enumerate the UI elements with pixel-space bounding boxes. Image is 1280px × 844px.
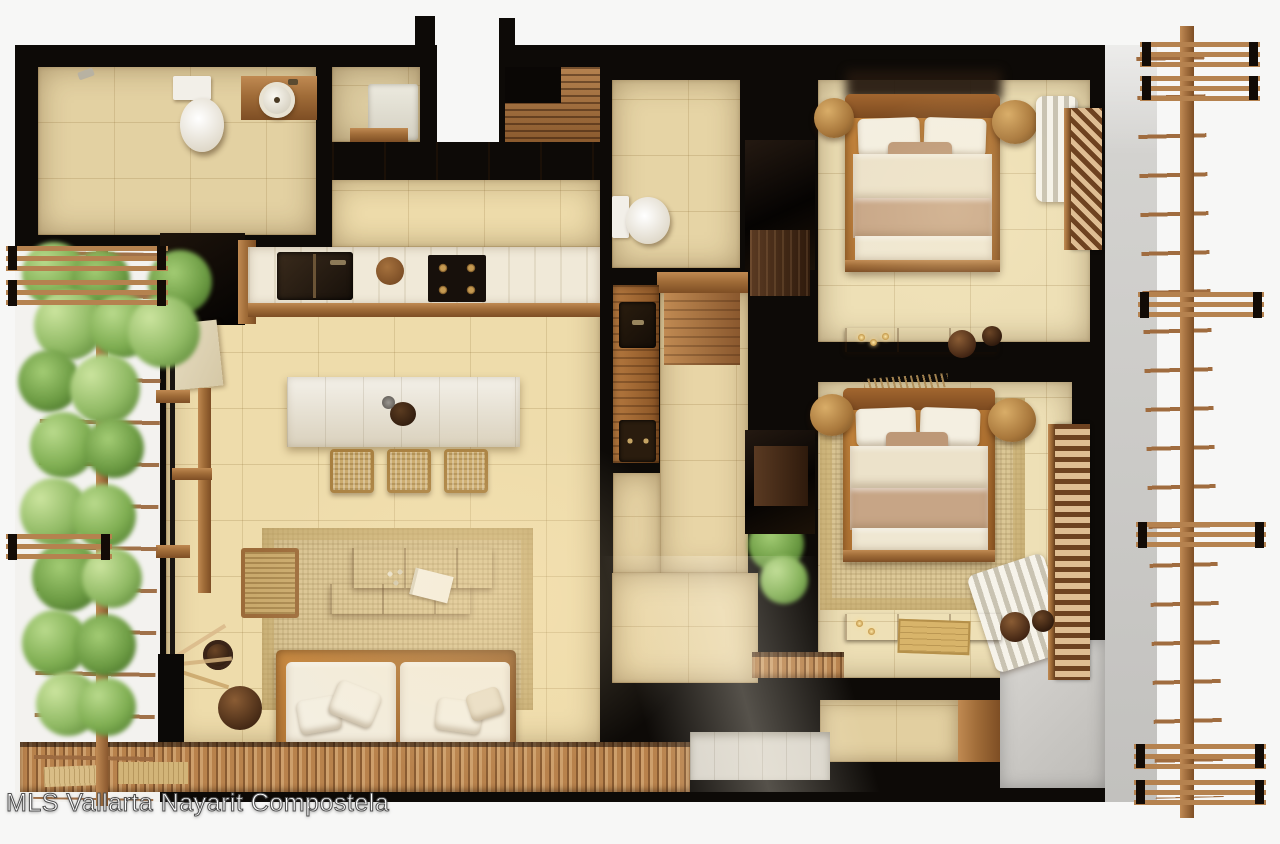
bed1-sheet-top xyxy=(853,154,992,200)
bedroom1-window-frame xyxy=(1064,108,1071,250)
right-beams-5 xyxy=(1134,744,1266,770)
right-beams-1 xyxy=(1140,42,1260,68)
bed1-pouf-right xyxy=(992,100,1038,144)
bedroom2-door-deck xyxy=(752,652,844,678)
pergola-beams-top-1 xyxy=(6,246,168,272)
garden-leaf xyxy=(74,614,136,676)
kitchen-back-floor xyxy=(332,180,600,247)
marble-walkway xyxy=(690,732,830,780)
bed2-blanket xyxy=(850,488,988,530)
sink-faucet xyxy=(330,260,346,265)
floor-vase-large xyxy=(218,686,262,730)
bench2-vase-1 xyxy=(1000,612,1030,642)
bedroom1-dresser xyxy=(750,230,810,296)
bench1-vase-1 xyxy=(948,330,976,358)
hall-toilet-bowl xyxy=(626,197,670,244)
bedroom2-window-frame xyxy=(1048,424,1055,680)
garden-leaf xyxy=(70,354,140,424)
hall-lower-floor xyxy=(612,573,758,683)
pergola-beams-mid xyxy=(6,534,112,562)
hall-mid-floor xyxy=(613,473,660,573)
garden-leaf xyxy=(78,678,136,736)
island-decor-cup xyxy=(382,396,395,409)
pergola-beams-top-2 xyxy=(6,280,168,308)
bed1-blanket xyxy=(853,198,992,238)
counter-front-edge xyxy=(248,303,600,317)
bed1-headboard xyxy=(845,94,1000,118)
bed1-pouf-left xyxy=(814,98,854,138)
toilet-tank xyxy=(173,76,211,100)
floor-vase-small xyxy=(203,640,233,670)
gas-stove xyxy=(428,255,486,302)
bench1-candle-3 xyxy=(882,333,889,340)
vanity-sink-2 xyxy=(619,420,656,462)
bed2-sheet-top xyxy=(850,446,988,488)
bedroom2-dresser xyxy=(754,446,808,506)
entry-closet-box xyxy=(505,67,561,103)
bedroom2-plant-2 xyxy=(760,556,808,604)
hall-bathroom-floor xyxy=(612,80,740,268)
vanity-wood-chunk xyxy=(664,293,740,365)
bar-stool-2 xyxy=(387,449,431,493)
bedroom2-shutters xyxy=(1055,424,1090,680)
vanity-top-ledge xyxy=(657,272,748,293)
bar-stool-3 xyxy=(444,449,488,493)
laundry-shelf xyxy=(350,128,408,142)
right-beams-4 xyxy=(1136,522,1266,550)
patio-door-post xyxy=(198,388,211,593)
coffee-tray xyxy=(380,562,412,594)
bed2-pouf-right xyxy=(988,398,1036,442)
bench1-vase-2 xyxy=(982,326,1002,346)
right-beams-2 xyxy=(1140,76,1260,102)
entry-wood-floor xyxy=(332,142,600,180)
bed2-foot-rail xyxy=(843,550,995,562)
right-beams-6 xyxy=(1134,780,1266,806)
bench1-candle-1 xyxy=(858,334,865,341)
bed1-foot-rail xyxy=(845,260,1000,272)
wicker-chair xyxy=(241,548,299,618)
vanity-sink-1 xyxy=(619,302,656,348)
toilet-bowl xyxy=(180,98,224,152)
bedroom1-shutters xyxy=(1071,108,1102,250)
garden-leaf xyxy=(84,418,144,478)
alcove-wood-panel xyxy=(958,700,1000,762)
right-trellis-rail xyxy=(1180,26,1194,818)
vanity-faucet-1 xyxy=(632,320,644,325)
bench2-tray xyxy=(897,619,970,655)
sink-divider xyxy=(313,254,316,298)
cutting-board xyxy=(376,257,404,285)
right-beams-3 xyxy=(1138,292,1264,320)
bar-stool-1 xyxy=(330,449,374,493)
bench1-candle-2 xyxy=(870,339,877,346)
floorplan-render: MLS Vallarta Nayarit Compostela xyxy=(0,0,1280,844)
bench2-candle-2 xyxy=(868,628,875,635)
alcove-tile-wall xyxy=(820,700,958,762)
bench2-candle-1 xyxy=(856,620,863,627)
bed2-pouf-left xyxy=(810,394,854,436)
bed2-headboard xyxy=(843,388,995,410)
basin-faucet xyxy=(288,79,298,85)
patio-door-rail xyxy=(172,468,212,480)
entry-opening xyxy=(437,45,499,142)
watermark-text: MLS Vallarta Nayarit Compostela xyxy=(6,789,389,818)
bench2-vase-2 xyxy=(1032,610,1054,632)
basin-drain xyxy=(274,97,280,103)
